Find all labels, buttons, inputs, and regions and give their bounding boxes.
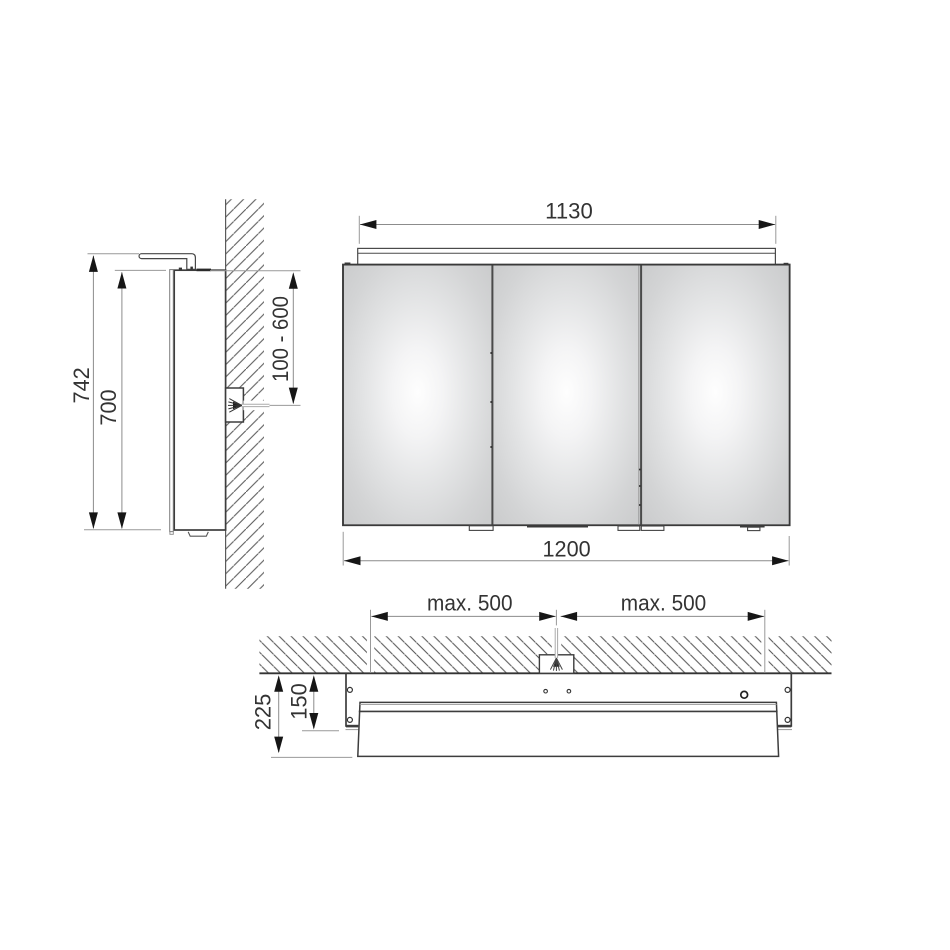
svg-text:100 - 600: 100 - 600 [268,296,293,382]
svg-text:700: 700 [96,389,121,425]
svg-text:max. 500: max. 500 [621,590,707,615]
svg-text:150: 150 [287,683,312,720]
svg-text:max. 500: max. 500 [427,590,513,615]
svg-text:1200: 1200 [543,536,591,561]
svg-text:742: 742 [69,367,94,403]
svg-text:225: 225 [250,694,275,731]
svg-text:1130: 1130 [545,199,593,224]
